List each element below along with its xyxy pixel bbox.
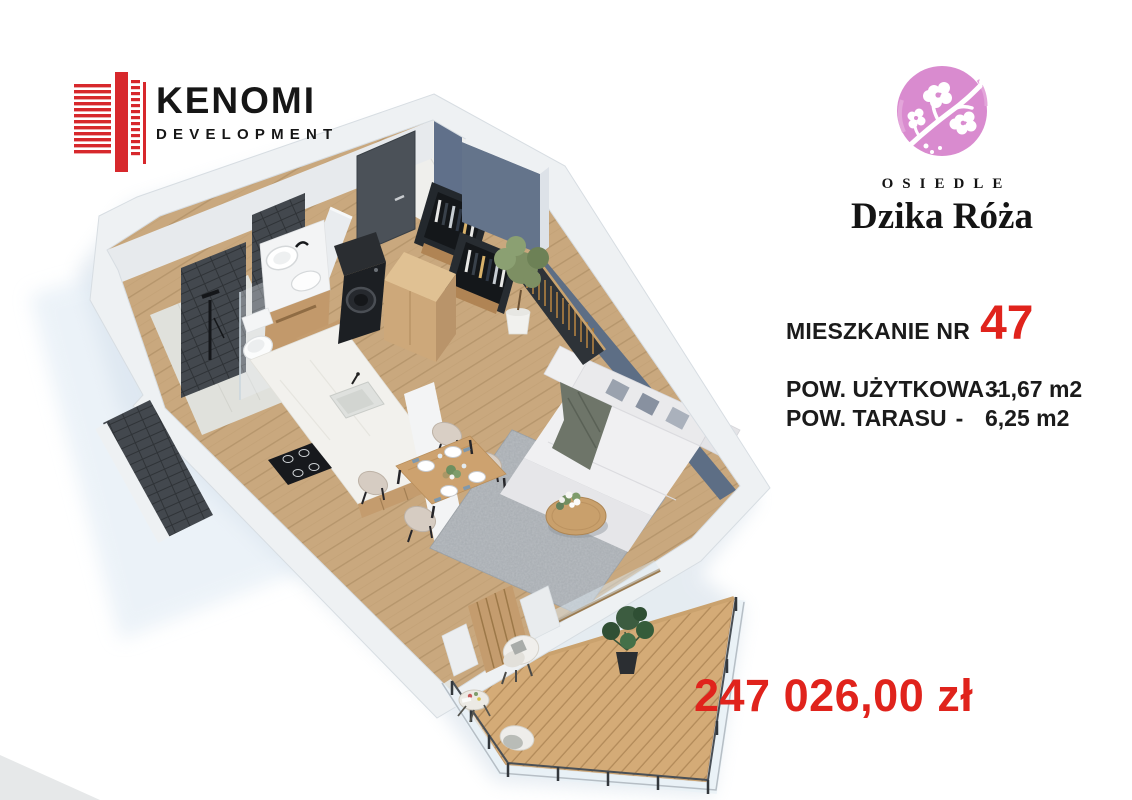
estate-name: Dzika Róża	[842, 195, 1042, 238]
developer-logo: KENOMI DEVELOPMENT	[72, 70, 338, 174]
area-row-usable: POW. UŻYTKOWA- 31,67 m2	[786, 376, 1092, 405]
estate-logo: OSIEDLE Dzika Róża	[842, 60, 1042, 238]
area-value: 31,67 m2	[985, 376, 1082, 403]
developer-subtitle: DEVELOPMENT	[156, 126, 338, 143]
estate-kicker: OSIEDLE	[842, 176, 1042, 193]
blossom-logo-icon	[842, 60, 1042, 162]
shower-tiles	[181, 242, 246, 398]
area-table: POW. UŻYTKOWA- 31,67 m2 POW. TARASU- 6,2…	[786, 376, 1092, 434]
area-label: POW. UŻYTKOWA	[786, 376, 984, 402]
area-row-terrace: POW. TARASU- 6,25 m2	[786, 405, 1092, 434]
price: 247 026,00 zł	[694, 670, 973, 722]
unit-line: MIESZKANIE NR 47	[786, 300, 1033, 348]
unit-number: 47	[980, 300, 1033, 348]
corner-shade	[0, 755, 100, 800]
area-label: POW. TARASU	[786, 405, 947, 431]
area-value: 6,25 m2	[985, 405, 1069, 432]
developer-name: KENOMI	[156, 82, 338, 119]
marketing-sheet: KENOMI DEVELOPMENT	[0, 0, 1132, 800]
unit-label: MIESZKANIE NR	[786, 318, 970, 345]
building-icon	[72, 70, 146, 174]
